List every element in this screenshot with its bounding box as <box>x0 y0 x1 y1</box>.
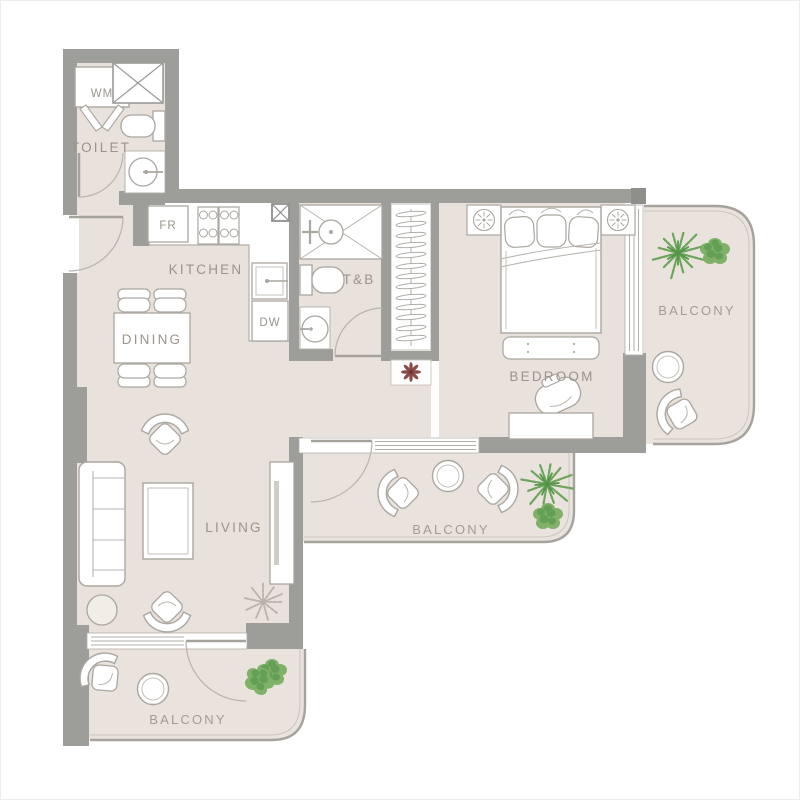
wall-top-end-cap <box>631 188 646 204</box>
wall-living-south-block <box>246 623 303 649</box>
bathroom-sink <box>300 307 330 349</box>
nightstand-left <box>467 205 501 235</box>
wall-bathroom-bottom <box>289 349 333 361</box>
kitchen-sink <box>252 263 288 299</box>
wall-top-utility <box>63 49 179 63</box>
sofa <box>79 462 125 586</box>
tv-screen <box>274 481 279 565</box>
stove <box>198 207 239 244</box>
nightstand-lamp-icon <box>474 210 495 231</box>
bed-bench <box>503 337 599 359</box>
bed-pillows <box>504 215 599 248</box>
nightstand-right <box>601 205 635 235</box>
toilet-room-wc <box>121 111 165 141</box>
side-table <box>87 595 117 625</box>
tv-console <box>270 462 294 584</box>
nightstand-lamp-icon <box>608 210 629 231</box>
desk <box>509 413 593 439</box>
floor-plan: WM TOILET FR KITCHEN DW T&B DINING LIVIN… <box>1 1 800 800</box>
balcony-table <box>433 461 464 492</box>
shaft-box <box>113 63 163 103</box>
label-dishwasher: DW <box>259 317 280 329</box>
bed <box>501 207 601 333</box>
toilet-room-sink <box>125 151 165 193</box>
label-bathroom: T&B <box>343 272 376 287</box>
label-fridge: FR <box>159 220 176 232</box>
wall-kitchen-bathroom <box>289 203 299 359</box>
kitchen-shaft-box <box>272 204 289 221</box>
label-balcony-bottom: BALCONY <box>149 712 227 727</box>
wall-wardrobe-right <box>431 203 439 361</box>
floor-plan-page: WM TOILET FR KITCHEN DW T&B DINING LIVIN… <box>0 0 800 800</box>
wall-left-pilaster <box>77 387 87 463</box>
label-balcony-right: BALCONY <box>658 303 736 318</box>
wall-left-lower <box>63 273 77 746</box>
dining-chair <box>118 364 150 387</box>
label-bedroom: BEDROOM <box>509 369 594 384</box>
dining-chair <box>154 289 186 312</box>
bathroom-wc <box>300 265 344 295</box>
hall-plant-shelf <box>391 360 431 385</box>
label-dining: DINING <box>122 332 182 347</box>
wall-wardrobe-bottom <box>381 351 439 361</box>
red-flower-plant <box>401 362 421 382</box>
wall-bedroom-east-lower <box>623 353 646 453</box>
shower <box>300 205 382 259</box>
label-balcony-middle: BALCONY <box>412 522 490 537</box>
wall-kitchen-stub <box>133 203 149 246</box>
balcony-table <box>653 352 684 383</box>
label-kitchen: KITCHEN <box>169 262 244 277</box>
balcony-table <box>138 674 169 705</box>
label-washing-machine: WM <box>91 88 113 100</box>
dining-chair <box>118 289 150 312</box>
label-living: LIVING <box>205 520 262 535</box>
wall-top-main <box>147 189 646 203</box>
coffee-table <box>143 483 193 559</box>
wall-utility-right <box>165 49 179 203</box>
label-toilet: TOILET <box>71 140 131 155</box>
dining-chair <box>154 364 186 387</box>
